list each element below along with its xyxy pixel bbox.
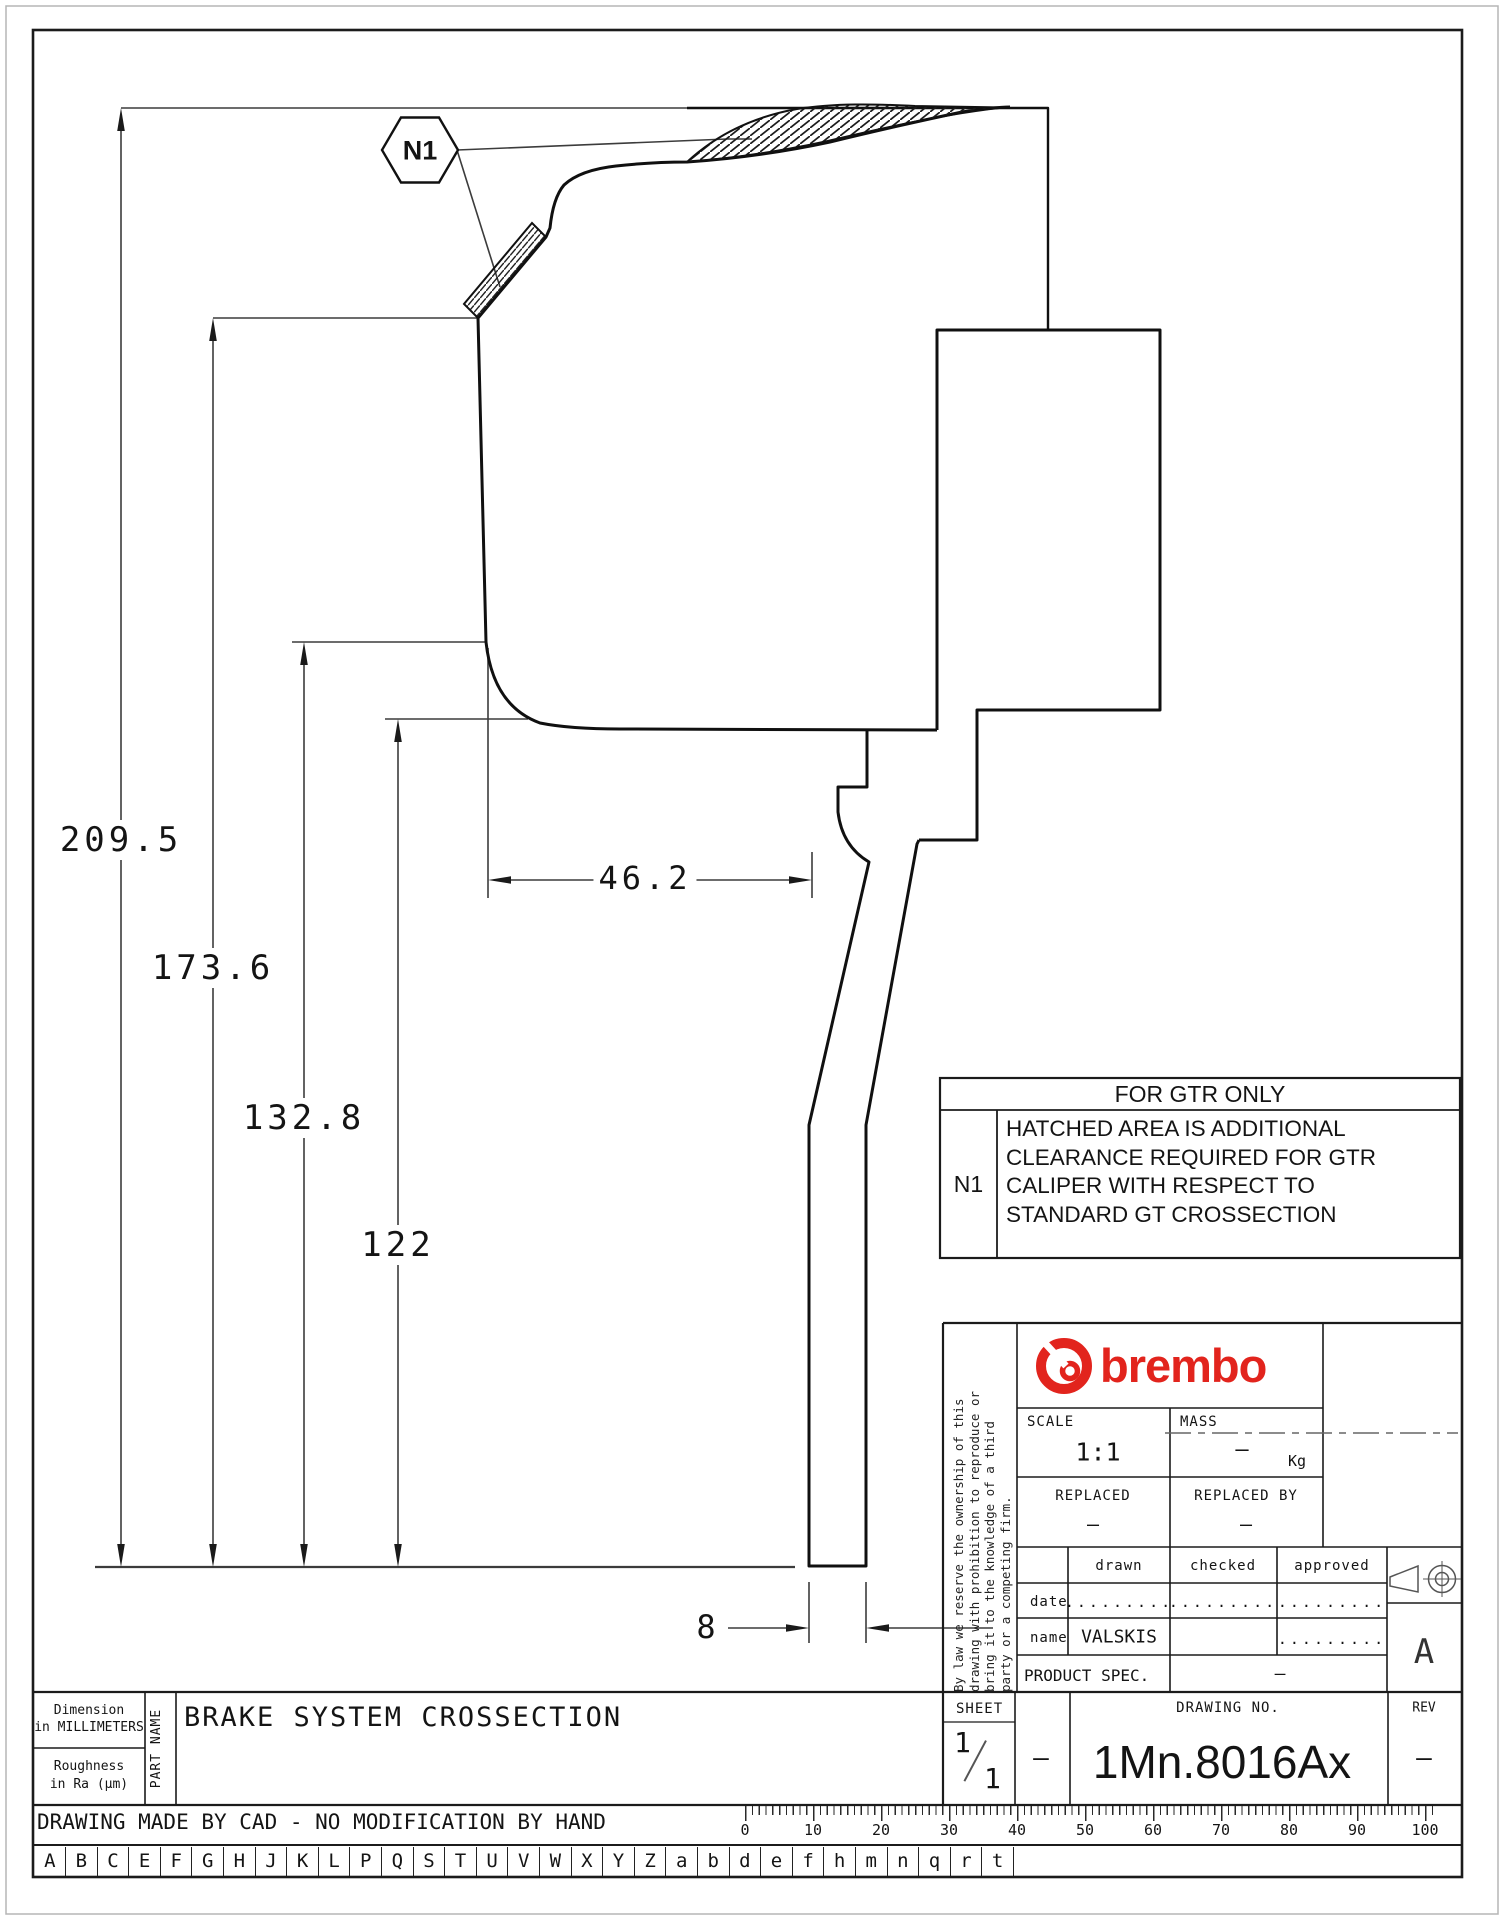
letters-strip-filler [1014, 1847, 1462, 1876]
letter-cell: Y [603, 1847, 635, 1876]
mass-unit: Kg [1288, 1452, 1306, 1470]
ruler-number: 40 [1008, 1821, 1026, 1839]
name-drawn-value: VALSKIS [1081, 1627, 1157, 1648]
letter-cell: t [982, 1847, 1014, 1876]
product-spec-label: PRODUCT SPEC. [1024, 1666, 1149, 1685]
letter-cell: m [856, 1847, 888, 1876]
letter-cell: U [477, 1847, 509, 1876]
date-approved-dots: ......... [1278, 1593, 1386, 1611]
letter-cell: r [951, 1847, 983, 1876]
replaced-by-value: – [1240, 1512, 1252, 1536]
product-spec-value: – [1275, 1664, 1286, 1685]
ruler-number: 20 [872, 1821, 890, 1839]
letter-cell: e [761, 1847, 793, 1876]
replaced-by-label: REPLACED BY [1194, 1488, 1298, 1504]
scale-label: SCALE [1027, 1414, 1074, 1430]
letter-cell: V [508, 1847, 540, 1876]
note-box-text: HATCHED AREA IS ADDITIONAL CLEARANCE REQ… [1006, 1115, 1376, 1229]
callout-label: N1 [403, 136, 438, 167]
letter-cell: n [888, 1847, 920, 1876]
roughness-note-line1: Roughness [33, 1758, 145, 1776]
letter-cell: d [730, 1847, 762, 1876]
rev-value: – [1416, 1743, 1432, 1773]
legal-line-2: drawing with prohibition to reproduce or [967, 1323, 983, 1692]
letter-cell: L [319, 1847, 351, 1876]
letter-cell: C [98, 1847, 130, 1876]
mass-label: MASS [1180, 1414, 1218, 1430]
mass-value: – [1235, 1438, 1248, 1463]
replaced-label: REPLACED [1055, 1488, 1130, 1504]
row-label-date: date [1030, 1594, 1068, 1610]
note-line-1: HATCHED AREA IS ADDITIONAL [1006, 1115, 1376, 1144]
drawing-sheet: 209.5 173.6 132.8 122 46.2 8 N1 FOR GTR … [0, 0, 1504, 1920]
letter-cell: Z [635, 1847, 667, 1876]
format-letter: A [1414, 1632, 1434, 1672]
letters-strip: A B C E F G H J K L P Q S T U V W X Y Z … [35, 1847, 1462, 1876]
letter-cell: f [793, 1847, 825, 1876]
scale-value: 1:1 [1075, 1438, 1120, 1467]
dimension-lines [95, 108, 993, 1643]
legal-line-1: By law we reserve the ownership of this [951, 1323, 967, 1692]
note-line-2: CLEARANCE REQUIRED FOR GTR [1006, 1144, 1376, 1173]
roughness-note: Roughness in Ra (µm) [33, 1758, 145, 1794]
row-label-name: name [1030, 1630, 1068, 1646]
letter-cell: F [161, 1847, 193, 1876]
sheet-denominator: 1 [984, 1762, 1001, 1795]
letter-cell: P [350, 1847, 382, 1876]
note-line-3: CALIPER WITH RESPECT TO [1006, 1172, 1376, 1201]
dimension-arrows [117, 108, 889, 1632]
dimension-note-line1: Dimension [33, 1702, 145, 1719]
ruler-number: 0 [740, 1821, 749, 1839]
sheet-dash: – [1033, 1743, 1049, 1773]
part-name-label: PART NAME [149, 1692, 175, 1805]
col-header-checked: checked [1190, 1558, 1256, 1574]
dim-label-173-6: 173.6 [147, 948, 279, 988]
letter-cell: E [129, 1847, 161, 1876]
dim-label-132-8: 132.8 [238, 1098, 370, 1138]
dim-label-122: 122 [356, 1225, 439, 1265]
note-line-4: STANDARD GT CROSSECTION [1006, 1201, 1376, 1230]
rev-label: REV [1412, 1701, 1435, 1716]
col-header-drawn: drawn [1095, 1558, 1142, 1574]
legal-line-4: party or a competing firm. [998, 1323, 1014, 1692]
roughness-note-line2: in Ra (µm) [33, 1776, 145, 1794]
legal-notice: By law we reserve the ownership of this … [951, 1323, 1017, 1692]
letter-cell: a [666, 1847, 698, 1876]
brembo-logo-icon [1041, 1342, 1087, 1389]
ruler-number: 80 [1280, 1821, 1298, 1839]
letter-cell: Q [382, 1847, 414, 1876]
dim-label-8: 8 [691, 1608, 724, 1646]
letter-cell: b [698, 1847, 730, 1876]
letter-cell: q [919, 1847, 951, 1876]
date-checked-dots: ......... [1169, 1593, 1277, 1611]
date-drawn-dots: ......... [1065, 1593, 1173, 1611]
sheet-numerator: 1 [954, 1726, 971, 1759]
ruler-major-ticks [745, 1806, 1435, 1821]
letter-cell: A [35, 1847, 67, 1876]
brembo-wordmark: brembo [1100, 1338, 1266, 1393]
drawing-no-value: 1Mn.8016Ax [1093, 1735, 1351, 1789]
legal-line-3: bring it to the knowledge of a third [982, 1323, 998, 1692]
name-approved-dots: ......... [1278, 1630, 1386, 1648]
ruler-number: 50 [1076, 1821, 1094, 1839]
replaced-value: – [1087, 1512, 1099, 1536]
letter-cell: X [572, 1847, 604, 1876]
letter-cell: B [66, 1847, 98, 1876]
ruler-number: 30 [940, 1821, 958, 1839]
dimension-note-line2: in MILLIMETERS [33, 1719, 145, 1736]
letter-cell: h [824, 1847, 856, 1876]
cad-note: DRAWING MADE BY CAD - NO MODIFICATION BY… [37, 1810, 606, 1834]
ruler-number: 100 [1411, 1821, 1438, 1839]
ruler-number: 10 [804, 1821, 822, 1839]
hatched-area-top [687, 104, 1005, 162]
ruler-number: 70 [1212, 1821, 1230, 1839]
col-header-approved: approved [1294, 1558, 1369, 1574]
part-title: BRAKE SYSTEM CROSSECTION [184, 1702, 622, 1733]
projection-symbol-icon [1390, 1561, 1461, 1597]
dim-label-209-5: 209.5 [55, 820, 187, 860]
letter-cell: H [224, 1847, 256, 1876]
letter-cell: W [540, 1847, 572, 1876]
dimension-note: Dimension in MILLIMETERS [33, 1702, 145, 1736]
hatched-area-band [464, 223, 546, 318]
note-box-header: FOR GTR ONLY [940, 1081, 1460, 1108]
ruler-number: 60 [1144, 1821, 1162, 1839]
ruler-number: 90 [1348, 1821, 1366, 1839]
sheet-label: SHEET [956, 1701, 1003, 1717]
note-box-tag: N1 [940, 1171, 997, 1198]
letter-cell: J [256, 1847, 288, 1876]
drawing-no-label: DRAWING NO. [1176, 1700, 1280, 1716]
letter-cell: S [414, 1847, 446, 1876]
letter-cell: K [287, 1847, 319, 1876]
dim-label-46-2: 46.2 [593, 859, 696, 897]
letter-cell: G [192, 1847, 224, 1876]
letter-cell: T [445, 1847, 477, 1876]
